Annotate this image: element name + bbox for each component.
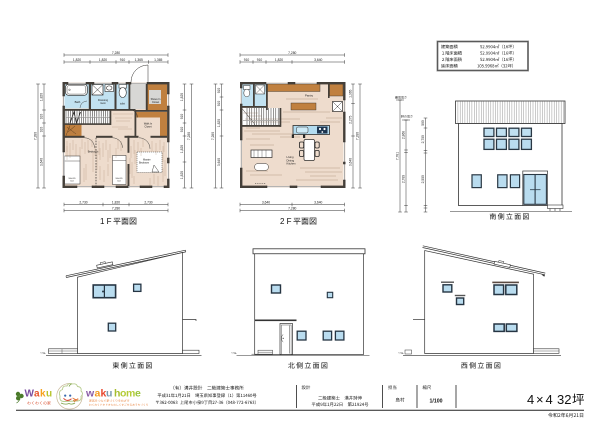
svg-text:Kitchen: Kitchen — [287, 162, 296, 166]
svg-text:7,280: 7,280 — [356, 132, 360, 140]
svg-text:1,820: 1,820 — [112, 200, 120, 204]
svg-text:m: m — [126, 388, 135, 400]
svg-text:W: W — [25, 389, 35, 400]
svg-text:u: u — [106, 388, 112, 400]
svg-text:Closet: Closet — [144, 125, 151, 128]
svg-text:7,280: 7,280 — [288, 206, 296, 210]
svg-text:1,820: 1,820 — [180, 145, 184, 153]
svg-text:Bedroom: Bedroom — [139, 161, 149, 164]
svg-text:1,365: 1,365 — [135, 58, 143, 62]
svg-text:32: 32 — [557, 392, 571, 407]
svg-text:4: 4 — [527, 392, 534, 407]
svg-text:910: 910 — [40, 114, 44, 120]
svg-text:7,280: 7,280 — [112, 51, 120, 55]
svg-text:w: w — [85, 388, 95, 400]
svg-text:3,640: 3,640 — [349, 158, 353, 166]
svg-text:2,750: 2,750 — [421, 135, 425, 143]
svg-text:910: 910 — [40, 127, 44, 133]
svg-text:910: 910 — [257, 58, 263, 62]
svg-text:1/100: 1/100 — [430, 399, 443, 405]
svg-text:3,640: 3,640 — [314, 200, 322, 204]
svg-text:1,365: 1,365 — [154, 58, 162, 62]
svg-text:1,820: 1,820 — [73, 58, 81, 62]
svg-text:Closet: Closet — [152, 101, 159, 104]
svg-text:u: u — [46, 389, 52, 400]
svg-text:bed: bed — [71, 180, 74, 182]
svg-text:bed: bed — [118, 180, 121, 182]
svg-text:7,280: 7,280 — [187, 132, 191, 140]
svg-text:×: × — [536, 392, 544, 407]
svg-text:1,820: 1,820 — [180, 93, 184, 101]
svg-text:e: e — [135, 388, 141, 400]
svg-text:1,820: 1,820 — [40, 93, 44, 101]
svg-text:2,868: 2,868 — [402, 131, 406, 139]
svg-text:Pantry: Pantry — [305, 94, 314, 98]
svg-text:910: 910 — [217, 88, 221, 94]
svg-text:1,820: 1,820 — [99, 58, 107, 62]
svg-text:7,280: 7,280 — [34, 132, 38, 140]
svg-text:3,640: 3,640 — [262, 200, 270, 204]
svg-text:910: 910 — [180, 127, 184, 133]
svg-text:7,280: 7,280 — [288, 51, 296, 55]
svg-text:910: 910 — [120, 58, 126, 62]
svg-text:3,640: 3,640 — [217, 158, 221, 166]
svg-text:7,280: 7,280 — [112, 206, 120, 210]
svg-text:Bath: Bath — [75, 100, 81, 104]
svg-text:2,730: 2,730 — [144, 200, 152, 204]
svg-text:1,820: 1,820 — [180, 171, 184, 179]
svg-text:2,730: 2,730 — [79, 200, 87, 204]
svg-text:910: 910 — [244, 58, 250, 62]
svg-text:7,280: 7,280 — [211, 132, 215, 140]
svg-text:1,820: 1,820 — [217, 119, 221, 127]
svg-text:910: 910 — [180, 114, 184, 120]
svg-text:toilet: toilet — [120, 103, 125, 106]
svg-text:4: 4 — [546, 392, 553, 407]
svg-text:3,640: 3,640 — [314, 58, 322, 62]
svg-text:1,365: 1,365 — [349, 89, 353, 97]
svg-text:590: 590 — [421, 120, 425, 126]
svg-text:room: room — [100, 101, 106, 105]
svg-text:2,550: 2,550 — [421, 175, 425, 183]
svg-text:7,781: 7,781 — [396, 152, 400, 160]
svg-text:2 F: 2 F — [280, 217, 292, 226]
svg-text:2,789: 2,789 — [402, 175, 406, 183]
svg-text:1 F: 1 F — [100, 217, 112, 226]
svg-text:1,820: 1,820 — [275, 58, 283, 62]
svg-text:3,640: 3,640 — [40, 158, 44, 166]
svg-text:910: 910 — [217, 101, 221, 107]
svg-text:2,275: 2,275 — [349, 115, 353, 123]
